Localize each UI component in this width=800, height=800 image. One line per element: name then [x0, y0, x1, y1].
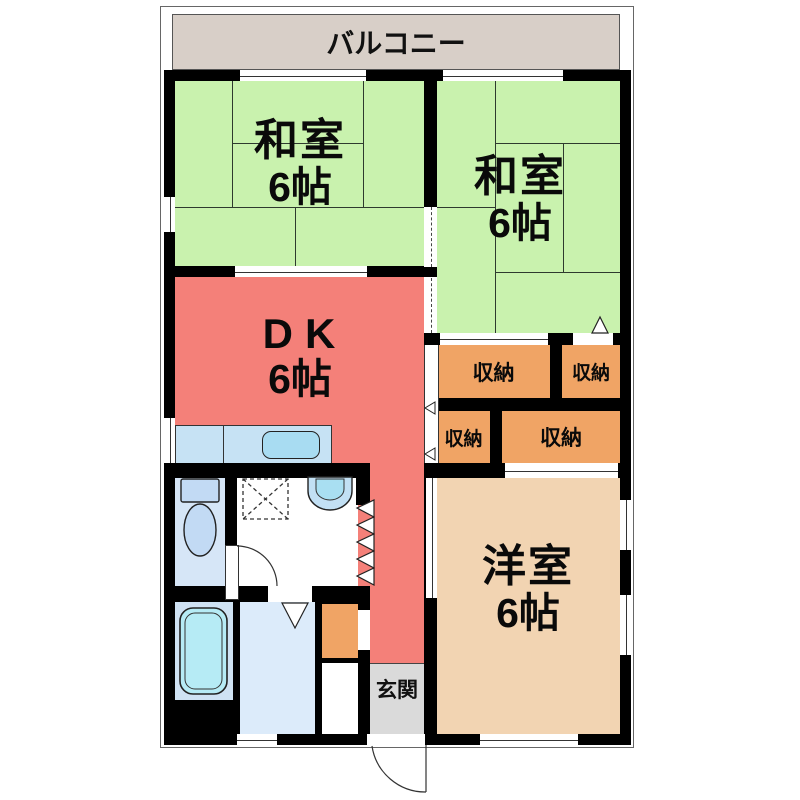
window: [237, 734, 277, 745]
room-size: 6帖: [438, 591, 618, 637]
closet-c-label: 収納: [437, 411, 490, 463]
room-name: DK: [210, 310, 390, 357]
entrance-door-swing-arc: [372, 746, 426, 792]
wall: [164, 70, 175, 745]
room-name: 洋室: [438, 542, 618, 591]
window: [443, 70, 563, 81]
balcony-label: バルコニー: [326, 22, 465, 62]
tatami-line: [295, 207, 296, 266]
entrance-door-opening: [367, 734, 425, 745]
western-room-sliding-door: [426, 478, 437, 598]
wall: [433, 398, 620, 411]
room-size: 6帖: [430, 201, 610, 247]
washitsu-right-label: 和室 6帖: [430, 152, 610, 247]
balcony: バルコニー: [172, 14, 620, 70]
wall: [164, 586, 370, 602]
washitsu-left-label: 和室 6帖: [200, 116, 400, 211]
closet-d-label: 収納: [502, 411, 620, 463]
toilet-door-leaf: [225, 545, 239, 600]
kitchen-sink: [262, 431, 320, 459]
door-opening: [268, 586, 312, 602]
bathroom: [175, 602, 233, 700]
sliding-door: [235, 266, 367, 277]
closet-a-label: 収納: [437, 345, 550, 398]
window: [240, 70, 366, 81]
fusuma-door: [424, 278, 437, 333]
door-opening: [573, 333, 613, 345]
room-name: 和室: [200, 116, 400, 165]
window: [164, 197, 175, 232]
closet-b-label: 収納: [562, 345, 620, 398]
wall: [356, 463, 370, 505]
window: [620, 500, 631, 550]
hall-closet: [322, 604, 358, 658]
counter-divider: [223, 425, 224, 463]
genkan-label: 玄関: [376, 674, 418, 704]
tatami-line: [495, 272, 620, 273]
dk-label: DK 6帖: [210, 310, 390, 403]
sliding-window: [505, 463, 618, 478]
western-room-label: 洋室 6帖: [438, 542, 618, 637]
window: [480, 734, 578, 745]
window: [620, 595, 631, 655]
door-opening: [358, 610, 370, 650]
washroom: [237, 477, 358, 586]
entrance-genkan: 玄関: [370, 663, 424, 734]
wall: [490, 411, 502, 463]
room-name: 和室: [430, 152, 610, 201]
room-size: 6帖: [210, 357, 390, 403]
toilet-room: [175, 477, 225, 586]
tatami-line: [495, 143, 620, 144]
wall: [164, 700, 240, 734]
wall: [315, 597, 322, 734]
floor-plan: バルコニー 玄関: [0, 0, 800, 800]
wall: [164, 463, 370, 478]
room-size: 6帖: [200, 165, 400, 211]
window: [164, 418, 175, 463]
utility-room: [240, 602, 315, 734]
closet-sliding-door: [440, 333, 548, 345]
